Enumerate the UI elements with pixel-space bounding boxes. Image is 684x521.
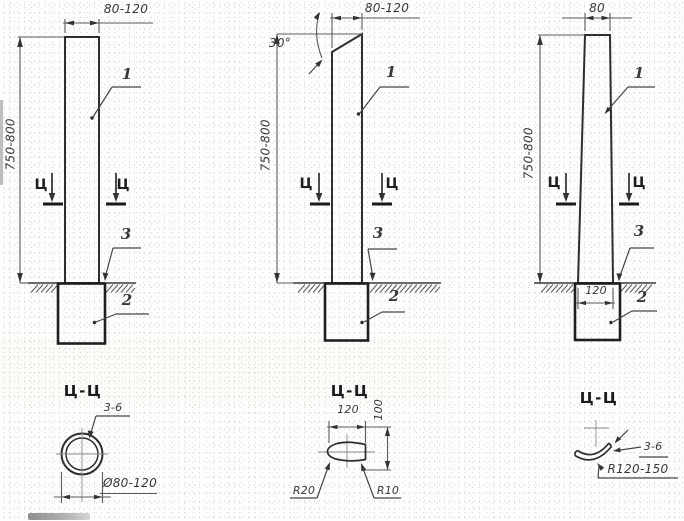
scan-smudge (28, 513, 90, 520)
section-letter-left: Ц (546, 176, 562, 191)
dim-radius-right: R10 (374, 485, 402, 497)
dim-diameter: Ø80-120 (102, 477, 158, 490)
dim-section-height: 100 (373, 396, 385, 424)
callout-ground: 3 (371, 226, 385, 242)
ground-hatch-left (541, 285, 575, 293)
dim-height: 750-800 (5, 116, 18, 172)
callout-ground: 3 (632, 224, 646, 240)
callout-pole: 1 (120, 67, 134, 83)
dim-bevel-angle: 30° (265, 37, 295, 50)
callout-ground: 3 (119, 227, 133, 243)
dim-wall-thickness: 3-6 (99, 402, 127, 414)
section-letter-left: Ц (33, 178, 49, 193)
callout-footing: 2 (635, 290, 649, 306)
callout-pole: 1 (632, 66, 646, 82)
ground-hatch-left (31, 285, 58, 293)
dim-base-width: 120 (583, 285, 609, 297)
dim-plate-thickness: 3-6 (640, 441, 666, 453)
dim-top-width: 80-120 (361, 2, 413, 15)
section-title: Ц-Ц (62, 384, 104, 400)
drawing-sheet: 80-120 750-800 1 3 2 Ц Ц Ц-Ц 3-6 Ø80-120… (0, 0, 684, 521)
dim-top-width: 80 (584, 2, 610, 15)
dim-height: 750-800 (523, 125, 536, 181)
dim-top-width: 80-120 (99, 3, 153, 16)
dim-radius: R120-150 (602, 463, 674, 476)
ground-hatch-right (370, 285, 440, 293)
section-letter-right: Ц (384, 177, 400, 192)
ground-hatch-left (298, 285, 325, 293)
scan-edge-streak (0, 100, 3, 185)
dim-height: 750-800 (260, 117, 273, 173)
section-letter-right: Ц (115, 178, 131, 193)
callout-footing: 2 (120, 293, 134, 309)
section-title: Ц-Ц (329, 384, 371, 400)
section-letter-right: Ц (631, 176, 647, 191)
linework-layer (0, 0, 684, 521)
dim-section-width: 120 (335, 404, 361, 416)
section-letter-left: Ц (298, 177, 314, 192)
section-title: Ц-Ц (578, 391, 620, 407)
callout-pole: 1 (384, 65, 398, 81)
callout-footing: 2 (387, 289, 401, 305)
dim-radius-left: R20 (290, 485, 318, 497)
